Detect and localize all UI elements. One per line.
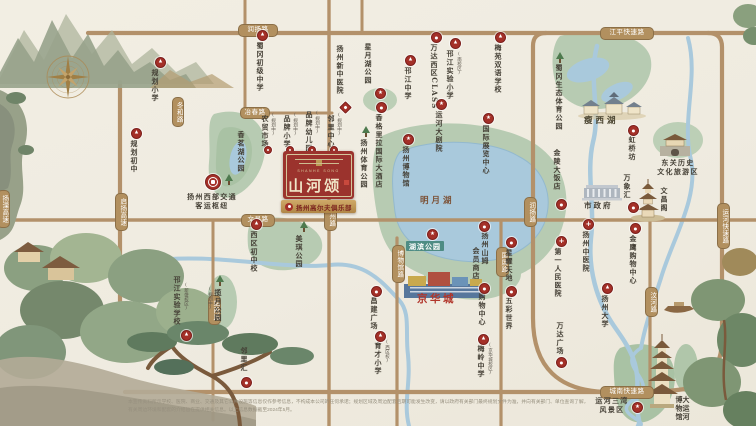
first-peoples-hospital-marker[interactable]: + bbox=[556, 236, 567, 247]
plan-market-label: 农贸市场 bbox=[262, 115, 269, 148]
plan-neighborhood-label: 邻里中心 bbox=[328, 115, 335, 148]
tcm-hospital-label: 扬州中医院 bbox=[583, 231, 590, 273]
jinling-hotel-label: 金陵大饭店 bbox=[554, 149, 561, 191]
plan-market-marker[interactable] bbox=[264, 146, 272, 154]
wucai-world-label: 五彩世界 bbox=[506, 297, 513, 330]
xiqu-middle-marker[interactable]: ▲ bbox=[251, 219, 262, 230]
tcm-hospital-marker[interactable]: + bbox=[583, 219, 594, 230]
road-label-donghe: 冬和路 bbox=[172, 97, 184, 127]
hanjiang-exp-primary-label: 邗江实验小学 bbox=[447, 50, 454, 100]
wucai-world-marker[interactable]: ● bbox=[506, 286, 517, 297]
disclaimer-line-2: 有关周边环境和配套的介绍旨在提供相关信息。以上信息数据截至2024年5月。 bbox=[128, 407, 752, 415]
wanda-plaza-label: 万达广场 bbox=[557, 322, 564, 355]
linlihui-label: 邻里汇 bbox=[241, 347, 248, 372]
tiyu-park-marker[interactable] bbox=[361, 126, 371, 137]
badge-roof-motif-icon bbox=[295, 159, 343, 167]
xiqu-middle-label: 西区初中校 bbox=[251, 231, 258, 273]
meiling-middle-sublabel: (京华城校区) bbox=[487, 343, 492, 376]
project-badge: SHANHE SONG 山河颂 bbox=[283, 151, 354, 199]
yucai-primary-marker[interactable]: ▲ bbox=[375, 331, 386, 342]
hanjiang-exp-primary-sublabel: (南校区) bbox=[456, 52, 461, 76]
shugang-eco-park-label: 蜀冈生态体育公园 bbox=[556, 64, 563, 130]
canal-boat-icon bbox=[664, 302, 694, 313]
changjian-plaza-marker[interactable]: ● bbox=[371, 286, 382, 297]
intl-expo-center-label: 国际展览中心 bbox=[483, 125, 490, 175]
wanda-plaza-marker[interactable]: ● bbox=[556, 357, 567, 368]
lanyue-park-sublabel: (规划中) bbox=[207, 287, 212, 311]
yucai-primary-label: 育才小学 bbox=[375, 342, 382, 375]
wenchangge-label: 文昌阁 bbox=[661, 187, 668, 212]
plan-market-sublabel: (规划中) bbox=[270, 113, 275, 137]
canal-grand-theatre-marker[interactable]: ★ bbox=[436, 99, 447, 110]
hubin-park-label: 湖滨公园 bbox=[406, 241, 444, 251]
hanjiang-highschool-marker[interactable]: ▲ bbox=[405, 55, 416, 66]
road-label-jiangping: 江平快速路 bbox=[600, 27, 654, 40]
canal-grand-theatre-label: 运河大剧院 bbox=[436, 111, 443, 153]
government-building-icon bbox=[582, 185, 622, 201]
xingyao-tiandi-marker[interactable]: ● bbox=[506, 237, 517, 248]
hongqiaofang-label: 虹桥坊 bbox=[629, 136, 636, 161]
meiqi-park-label: 美琪公园 bbox=[296, 235, 303, 268]
road-label-yunhe-expwy: 运河快速路 bbox=[717, 203, 730, 249]
meiling-middle-marker[interactable]: ▲ bbox=[478, 334, 489, 345]
road-label-runyang-v: 润扬路 bbox=[524, 197, 537, 227]
disclaimer: 本宣传资料所示学校、医院、商业、交通及其它公共设施等信息仅作参考信息，不构成本公… bbox=[128, 399, 752, 415]
changjian-plaza-label: 昌建广场 bbox=[371, 297, 378, 330]
sams-club-1-marker[interactable]: ● bbox=[479, 221, 490, 232]
wanxianghui-marker[interactable]: ● bbox=[628, 202, 639, 213]
first-peoples-hospital-label: 第一人民医院 bbox=[555, 248, 562, 298]
meiling-middle-label: 梅岭中学 bbox=[478, 345, 485, 378]
mingyuehu-label: 明月湖 bbox=[420, 197, 455, 206]
hanjiang-exp-primary-marker[interactable]: ▲ bbox=[450, 38, 461, 49]
intl-expo-center-marker[interactable]: ★ bbox=[483, 113, 494, 124]
hanjiang-exp-school-marker[interactable]: ▲ bbox=[181, 330, 192, 341]
dongguan-historic-label: 东关历史 文化旅游区 bbox=[646, 158, 710, 177]
mountain-painting bbox=[0, 14, 234, 88]
project-badge-frame: SHANHE SONG 山河颂 bbox=[286, 154, 352, 197]
meiyuan-school-label: 梅苑双语学校 bbox=[495, 44, 502, 94]
plan-primary-label: 品牌小学 bbox=[284, 115, 291, 148]
shangrila-hotel-label: 香格里拉国际大酒店 bbox=[376, 114, 383, 189]
xiangminghu-park-label: 香茗湖公园 bbox=[238, 131, 245, 173]
shopping-center-marker[interactable]: ● bbox=[479, 283, 490, 294]
linlihui-marker[interactable]: ● bbox=[241, 377, 252, 388]
shouxihu-label: 瘦西湖 bbox=[584, 117, 619, 126]
yucai-primary-sublabel: (西区校) bbox=[384, 340, 389, 364]
shugang-middle-label: 蜀冈初级中学 bbox=[257, 42, 264, 92]
shangrila-hotel-marker[interactable]: ● bbox=[376, 102, 387, 113]
guihua-middle-label: 规划初中 bbox=[131, 140, 138, 173]
west-transport-hub-label: 扬州西部交通 客运枢纽 bbox=[180, 192, 244, 211]
lanyue-park-marker[interactable] bbox=[215, 275, 225, 286]
xin-tcm-hospital-label: 扬州新中医院 bbox=[337, 45, 344, 95]
guihua-xiaoxue-label: 规划小学 bbox=[152, 69, 159, 102]
road-label-qiyang-expwy: 启扬高速 bbox=[115, 193, 128, 231]
jinying-mall-marker[interactable]: ● bbox=[630, 223, 641, 234]
lanyue-park-label: 揽月公园 bbox=[215, 289, 222, 322]
hanjiang-highschool-label: 邗江中学 bbox=[405, 67, 412, 100]
yangzhou-museum-marker[interactable]: ★ bbox=[403, 134, 414, 145]
meiqi-park-marker[interactable] bbox=[299, 221, 309, 232]
xingyuehu-park-label: 星月湖公园 bbox=[365, 43, 372, 85]
project-name-en: SHANHE SONG bbox=[287, 169, 351, 173]
golf-club-label: 扬州高尔夫俱乐部 bbox=[296, 202, 352, 212]
project-name-cn: 山河颂 bbox=[287, 175, 351, 196]
location-map: SHANHE SONG 山河颂 扬州高尔夫俱乐部 本宣传资料所示学校、医院、商业… bbox=[0, 0, 756, 426]
jinling-hotel-marker[interactable]: ● bbox=[556, 199, 567, 210]
guihua-middle-marker[interactable]: ▲ bbox=[131, 128, 142, 139]
shopping-center-label: 购物中心 bbox=[479, 293, 486, 326]
plan-kindergarten-sublabel: (规划中) bbox=[314, 111, 319, 135]
road-label-bowuguan: 博物馆路 bbox=[392, 245, 405, 283]
city-government-label: 市政府 bbox=[584, 202, 613, 210]
road-label-wenhe: 汶河路 bbox=[645, 287, 658, 317]
golf-flag-icon bbox=[285, 203, 293, 211]
corner-tree-painting bbox=[733, 4, 756, 45]
yangzhou-university-label: 扬州大学 bbox=[602, 295, 609, 328]
sams-club-2-label: 会员商店 bbox=[473, 247, 480, 280]
tiyu-park-label: 扬州体育公园 bbox=[361, 139, 368, 189]
meiyuan-school-marker[interactable]: ▲ bbox=[495, 32, 506, 43]
golf-club-ribbon: 扬州高尔夫俱乐部 bbox=[281, 200, 356, 213]
plan-primary-sublabel: (规划中) bbox=[292, 113, 297, 137]
xingyuehu-park-marker[interactable]: ★ bbox=[375, 88, 386, 99]
wanxianghui-label: 万象汇 bbox=[624, 174, 631, 199]
hanjiang-exp-school-label: 邗江实验学校 bbox=[174, 276, 181, 326]
disclaimer-line-1: 本宣传资料所示学校、医院、商业、交通及其它公共设施等信息仅作参考信息，不构成本公… bbox=[128, 399, 752, 407]
hubin-park-marker[interactable]: ★ bbox=[427, 229, 438, 240]
shugang-middle-marker[interactable]: ▲ bbox=[257, 30, 268, 41]
jinying-mall-label: 金鹰购物中心 bbox=[630, 235, 637, 285]
shugang-eco-park-marker[interactable] bbox=[555, 52, 565, 63]
guihua-xiaoxue-marker[interactable]: ▲ bbox=[155, 57, 166, 68]
xingyao-tiandi-label: 星耀天地 bbox=[506, 249, 513, 282]
plan-neighborhood-sublabel: (规划中) bbox=[336, 113, 341, 137]
sams-club-1-label: 扬州山姆 bbox=[482, 232, 489, 265]
yangzhou-university-marker[interactable]: ▲ bbox=[602, 283, 613, 294]
compass-rose bbox=[47, 56, 89, 98]
hongqiaofang-marker[interactable]: ● bbox=[628, 125, 639, 136]
xiangminghu-park-marker[interactable] bbox=[224, 174, 234, 185]
jinghuacheng-label: 京华城 bbox=[417, 294, 456, 305]
road-label-yangli-expwy: 扬溧高速 bbox=[0, 190, 10, 228]
hanjiang-exp-school-sublabel: (新盛校区) bbox=[183, 283, 188, 311]
wanda-class-marker[interactable]: ● bbox=[431, 32, 442, 43]
west-transport-hub-marker[interactable] bbox=[205, 174, 221, 190]
yangzhou-museum-label: 扬州博物馆 bbox=[403, 146, 410, 188]
